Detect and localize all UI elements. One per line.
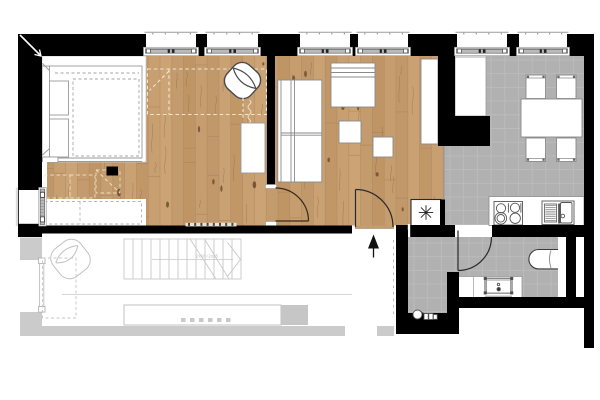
svg-text:2x18=2x25: 2x18=2x25 [196,254,219,259]
